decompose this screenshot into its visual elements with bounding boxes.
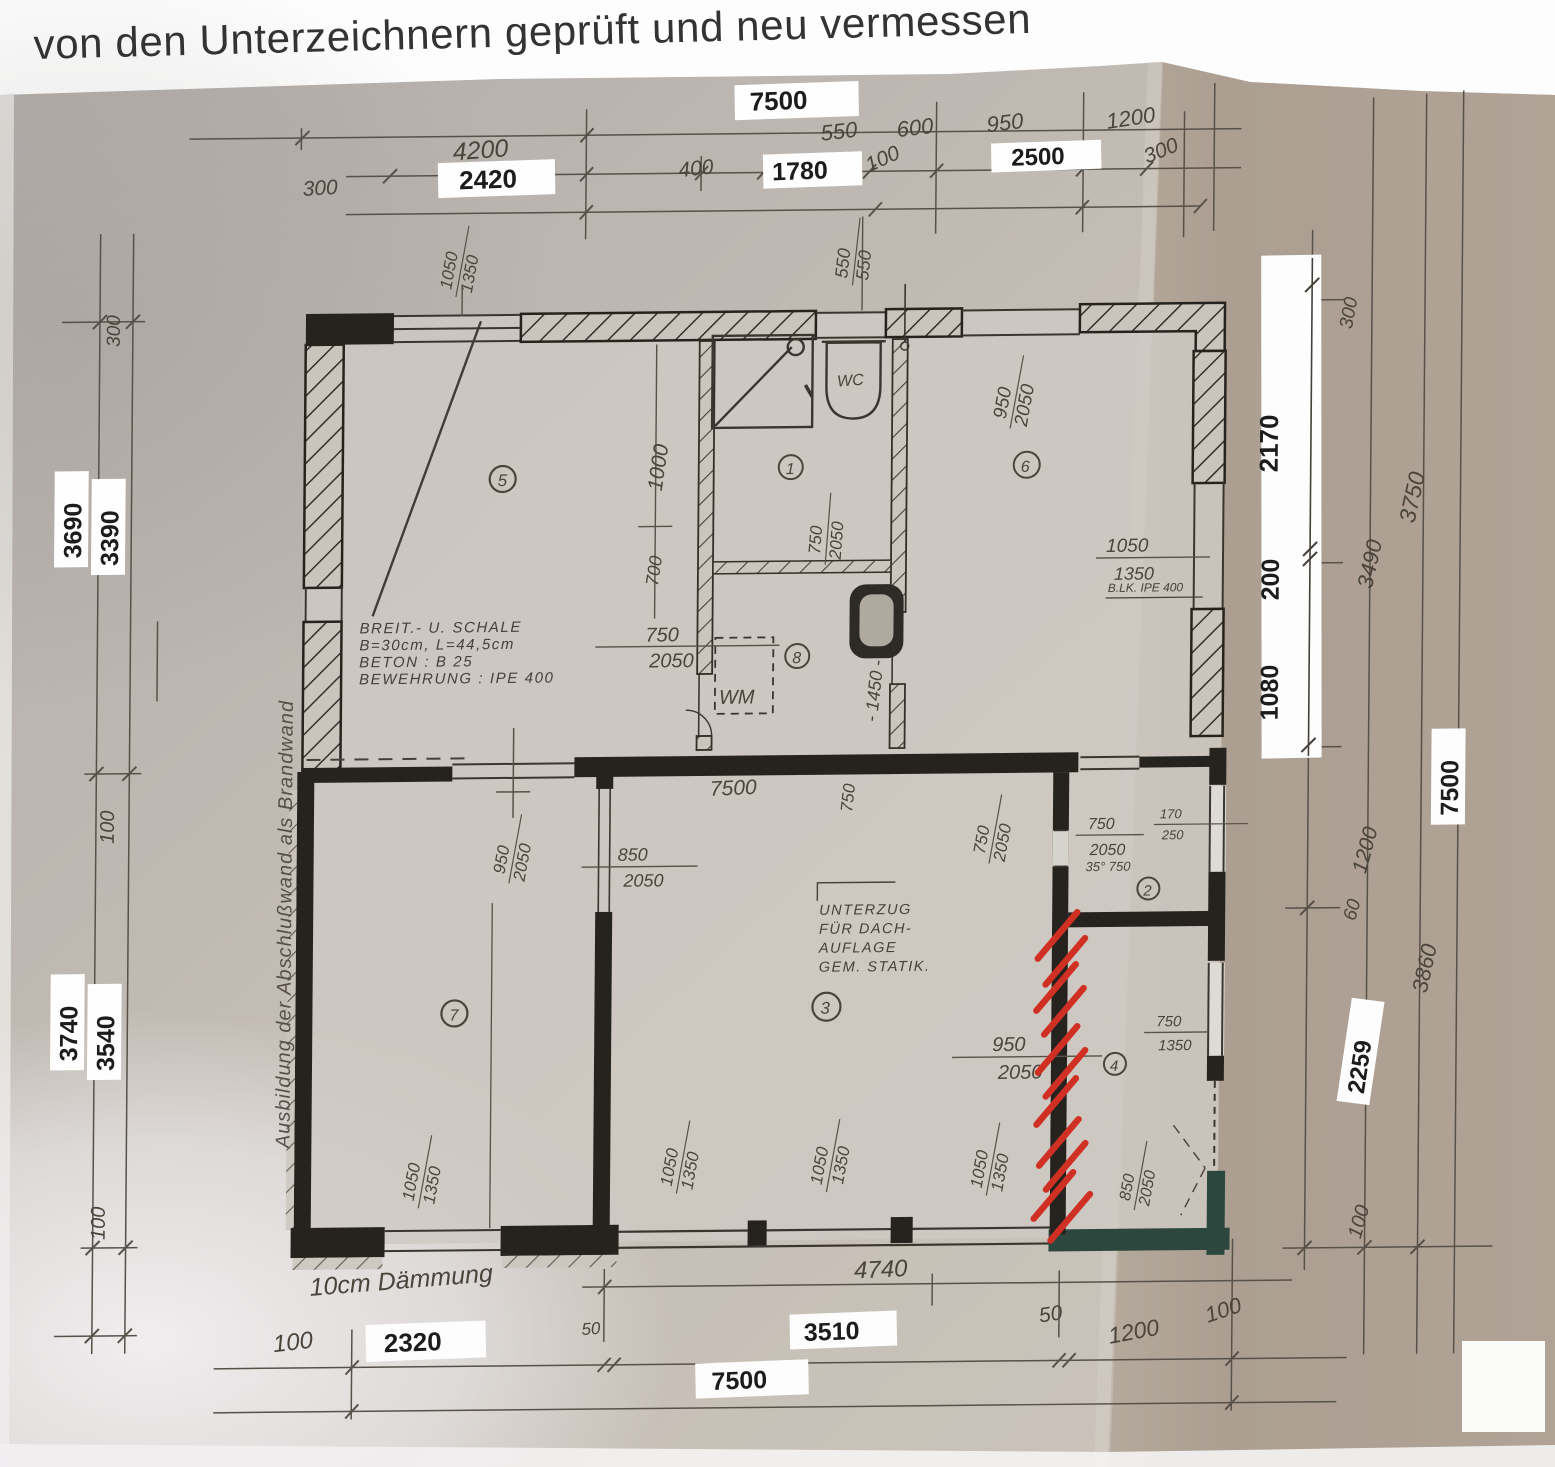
svg-text:100: 100 — [272, 1327, 315, 1358]
svg-text:6: 6 — [1021, 459, 1030, 476]
svg-text:BREIT.- U. SCHALE: BREIT.- U. SCHALE — [359, 619, 522, 638]
svg-text:300: 300 — [104, 315, 125, 347]
svg-text:750: 750 — [1156, 1013, 1182, 1030]
svg-text:950: 950 — [992, 1034, 1026, 1056]
svg-text:2500: 2500 — [1011, 143, 1065, 172]
svg-text:1080: 1080 — [1256, 665, 1284, 721]
svg-text:2320: 2320 — [384, 1326, 442, 1358]
svg-text:100: 100 — [97, 810, 119, 844]
svg-text:7500: 7500 — [711, 1366, 767, 1396]
svg-text:7500: 7500 — [1436, 760, 1464, 816]
svg-text:850: 850 — [618, 845, 648, 865]
svg-text:3540: 3540 — [92, 1015, 120, 1071]
svg-text:3690: 3690 — [59, 503, 87, 559]
svg-text:AUFLAGE: AUFLAGE — [818, 940, 897, 957]
svg-text:2050: 2050 — [826, 520, 848, 560]
svg-text:4740: 4740 — [854, 1255, 909, 1284]
svg-text:170: 170 — [1160, 806, 1183, 821]
svg-text:400: 400 — [677, 155, 714, 182]
svg-text:950: 950 — [985, 108, 1025, 137]
svg-text:550: 550 — [819, 117, 859, 146]
svg-text:200: 200 — [1257, 558, 1285, 600]
svg-text:2050: 2050 — [622, 870, 663, 890]
svg-text:100: 100 — [88, 1207, 110, 1241]
svg-text:3: 3 — [820, 999, 830, 1018]
svg-text:4: 4 — [1110, 1058, 1118, 1075]
svg-text:3390: 3390 — [96, 510, 124, 566]
svg-text:BETON : B 25: BETON : B 25 — [359, 653, 473, 671]
svg-text:GEM. STATIK.: GEM. STATIK. — [819, 959, 931, 976]
svg-text:WM: WM — [719, 686, 755, 708]
svg-text:50: 50 — [581, 1319, 602, 1339]
svg-text:1350: 1350 — [1158, 1037, 1192, 1054]
svg-text:750: 750 — [645, 624, 679, 646]
svg-text:2050: 2050 — [648, 650, 694, 672]
svg-text:750: 750 — [805, 525, 826, 555]
svg-text:BEWEHRUNG : IPE 400: BEWEHRUNG : IPE 400 — [359, 669, 555, 688]
svg-text:3510: 3510 — [804, 1317, 860, 1347]
svg-text:35° 750: 35° 750 — [1085, 859, 1131, 874]
svg-text:1050: 1050 — [1106, 536, 1149, 557]
svg-text:Ausbildung der Abschlußwand al: Ausbildung der Abschlußwand als Brandwan… — [272, 700, 298, 1149]
svg-text:8: 8 — [792, 650, 801, 667]
svg-text:550: 550 — [831, 247, 854, 279]
svg-text:7500: 7500 — [710, 776, 758, 801]
svg-text:7: 7 — [449, 1007, 459, 1024]
svg-text:1: 1 — [786, 461, 795, 478]
svg-text:1350: 1350 — [1114, 564, 1154, 584]
svg-text:50: 50 — [1038, 1301, 1064, 1327]
svg-text:600: 600 — [895, 113, 935, 142]
svg-text:750: 750 — [1088, 816, 1115, 833]
svg-text:7500: 7500 — [749, 85, 807, 117]
svg-text:750: 750 — [837, 782, 859, 813]
svg-text:2: 2 — [1142, 882, 1152, 899]
svg-text:UNTERZUG: UNTERZUG — [819, 902, 912, 919]
svg-text:B=30cm, L=44,5cm: B=30cm, L=44,5cm — [359, 636, 515, 655]
svg-text:5: 5 — [498, 471, 508, 490]
svg-text:250: 250 — [1161, 827, 1185, 842]
svg-text:WC: WC — [837, 372, 865, 391]
svg-text:3740: 3740 — [55, 1006, 83, 1062]
svg-text:1780: 1780 — [772, 156, 828, 186]
svg-text:2050: 2050 — [1089, 842, 1126, 859]
svg-text:2170: 2170 — [1254, 414, 1284, 472]
svg-text:300: 300 — [302, 176, 338, 201]
svg-text:2420: 2420 — [459, 163, 517, 195]
svg-text:FÜR DACH-: FÜR DACH- — [819, 919, 912, 938]
